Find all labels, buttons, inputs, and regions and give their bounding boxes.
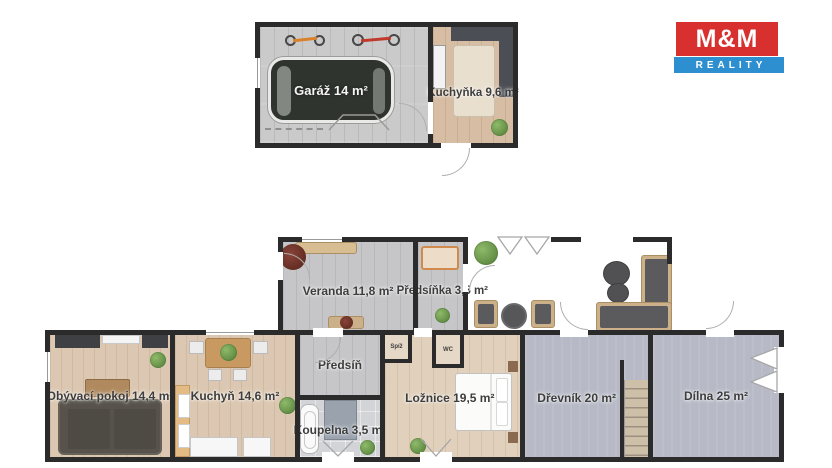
room-drevnik: Dřevník 20 m² — [525, 335, 648, 457]
room-wc: WC — [432, 335, 464, 368]
wall — [648, 335, 653, 457]
plant-icon — [279, 397, 296, 414]
room-veranda: Veranda 11,8 m² — [283, 242, 413, 330]
tv-cabinet — [142, 335, 168, 348]
room-label-dilna: Dílna 25 m² — [684, 389, 748, 403]
room-label-kuchyn: Kuchyň 14,6 m² — [191, 389, 280, 403]
room-label-loznice: Ložnice 19,5 m² — [405, 391, 494, 405]
wall — [413, 242, 418, 330]
door-arc — [442, 148, 470, 176]
door-opening — [414, 328, 432, 337]
chair — [253, 341, 268, 354]
nightstand — [508, 432, 518, 443]
plant-icon — [491, 119, 508, 136]
nightstand — [508, 361, 518, 372]
door-opening — [706, 328, 734, 337]
door-opening — [428, 102, 433, 134]
room-label-obyvaci: Obývací pokoj 14,4 m² — [47, 389, 174, 403]
room-obyvaci: Obývací pokoj 14,4 m² — [50, 335, 170, 457]
terrace-table — [501, 303, 527, 329]
room-label-wc: WC — [443, 347, 453, 353]
room-label-garaz: Garáž 14 m² — [294, 83, 368, 98]
kitchen-counter — [451, 27, 513, 41]
door-arc — [560, 302, 588, 330]
pouf — [607, 283, 629, 303]
window — [302, 237, 342, 242]
room-kuchynka: Kuchyňka 9,6 m² — [433, 27, 513, 143]
wall — [300, 395, 380, 400]
terrace-chair — [474, 300, 498, 328]
door-opening — [278, 252, 283, 280]
window — [45, 352, 50, 382]
stove — [433, 45, 446, 89]
chair — [233, 369, 247, 381]
chair — [208, 369, 222, 381]
room-label-kuchynka: Kuchyňka 9,6 m² — [427, 87, 518, 99]
bicycle-icon — [352, 29, 400, 47]
room-label-drevnik: Dřevník 20 m² — [537, 391, 616, 405]
bicycle-icon — [285, 31, 325, 47]
wall — [551, 237, 581, 242]
wall — [170, 335, 175, 457]
door-opening — [313, 328, 343, 337]
tv-cabinet — [55, 335, 100, 348]
wall — [620, 360, 624, 457]
sideboard — [102, 335, 140, 344]
plant-icon — [474, 241, 498, 265]
door-leaf-marks — [420, 438, 452, 458]
wall — [520, 335, 525, 457]
plant-icon — [435, 308, 450, 323]
room-label-koupelna: Koupelna 3,5 m² — [294, 423, 387, 437]
door-arc — [469, 265, 495, 291]
room-predsinka: Předsíňka 3,5 m² — [418, 242, 463, 330]
terrace-chair — [531, 300, 555, 328]
french-door — [497, 236, 551, 256]
door-leaf-marks — [322, 440, 354, 458]
door-arc — [706, 301, 734, 329]
room-kuchyn: Kuchyň 14,6 m² — [175, 335, 295, 457]
floorplan-canvas: M&M REALITY Garáž 14 m² — [0, 0, 832, 468]
mm-reality-logo: M&M REALITY — [674, 22, 784, 73]
wall — [667, 237, 672, 264]
room-loznice: Spíž WC Ložnice 19,5 m² — [385, 335, 520, 457]
plant-icon — [360, 440, 375, 455]
kitchen-counter — [243, 437, 271, 457]
kitchen-counter — [190, 437, 238, 457]
plant-icon — [220, 344, 237, 361]
wall — [380, 335, 385, 457]
room-label-spiz: Spíž — [390, 344, 402, 350]
logo-mm-text: M&M — [676, 22, 778, 56]
rug — [453, 45, 495, 117]
corner-sofa — [596, 302, 672, 332]
door-opening — [463, 264, 468, 292]
kitchen-counter — [175, 385, 190, 457]
stairs — [624, 380, 648, 457]
room-label-veranda: Veranda 11,8 m² — [303, 284, 394, 298]
window — [206, 330, 254, 335]
garage-door-marking — [328, 113, 390, 131]
plant-icon — [150, 352, 166, 368]
double-door-leaves — [748, 347, 778, 393]
sofa — [58, 399, 162, 455]
room-spiz: Spíž — [385, 335, 412, 363]
rug — [421, 246, 459, 270]
window — [255, 58, 260, 88]
logo-reality-text: REALITY — [674, 57, 784, 73]
chair — [189, 341, 204, 354]
garage-door-marking — [265, 128, 323, 130]
